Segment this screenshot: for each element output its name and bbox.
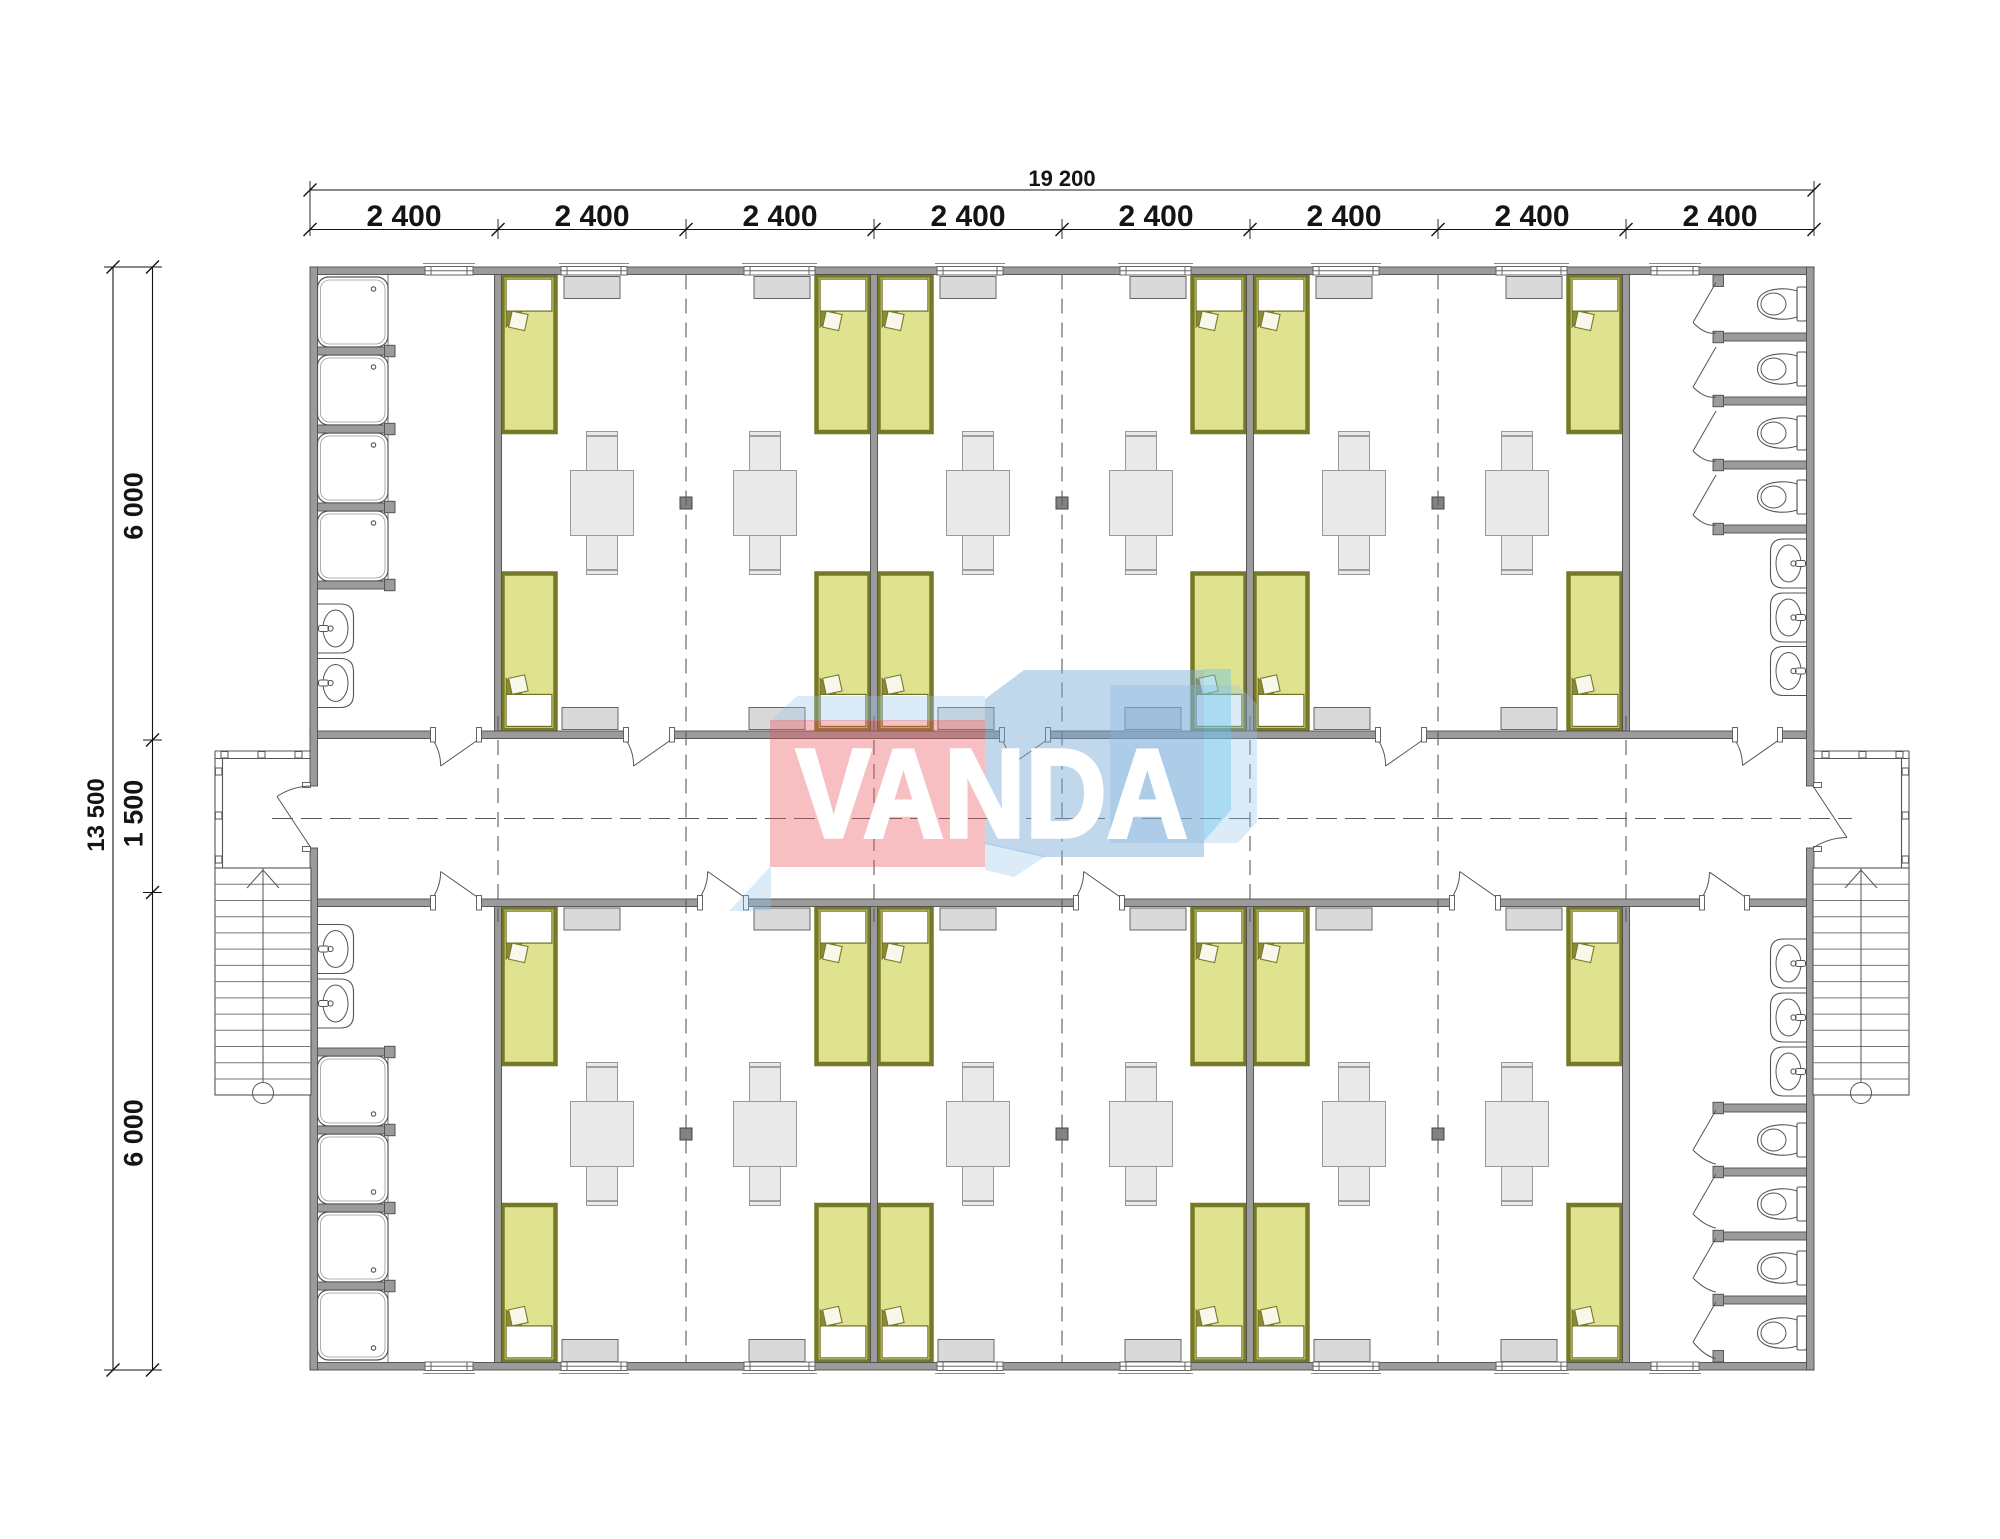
svg-text:2 400: 2 400 xyxy=(1682,200,1757,233)
svg-text:2 400: 2 400 xyxy=(1118,200,1193,233)
svg-text:VANDA: VANDA xyxy=(796,723,1188,864)
svg-text:13 500: 13 500 xyxy=(83,778,110,851)
svg-text:19 200: 19 200 xyxy=(1028,166,1095,191)
svg-text:2 400: 2 400 xyxy=(930,200,1005,233)
svg-text:2 400: 2 400 xyxy=(742,200,817,233)
svg-text:2 400: 2 400 xyxy=(1494,200,1569,233)
svg-text:2 400: 2 400 xyxy=(554,200,629,233)
svg-text:2 400: 2 400 xyxy=(366,200,441,233)
svg-text:1 500: 1 500 xyxy=(119,780,149,848)
svg-text:6 000: 6 000 xyxy=(119,472,149,540)
svg-text:6 000: 6 000 xyxy=(119,1099,149,1167)
svg-text:2 400: 2 400 xyxy=(1306,200,1381,233)
